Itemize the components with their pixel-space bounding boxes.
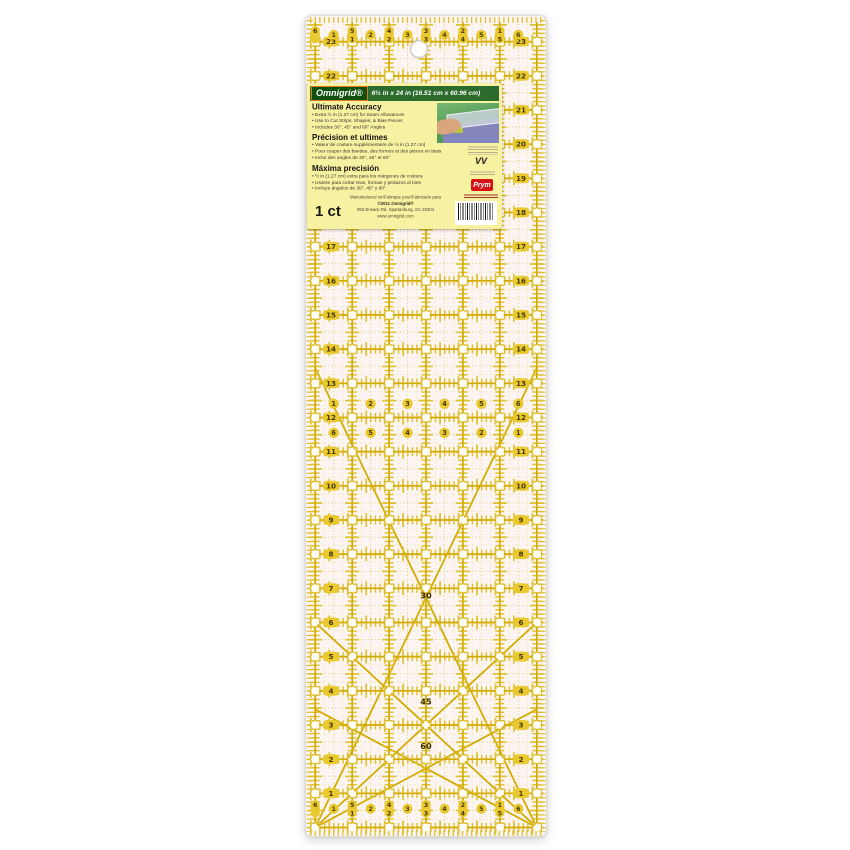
svg-text:60: 60: [420, 741, 432, 751]
svg-text:4: 4: [387, 27, 392, 35]
svg-text:1: 1: [518, 789, 523, 798]
svg-text:10: 10: [326, 481, 336, 490]
svg-text:3: 3: [442, 429, 447, 437]
svg-text:7: 7: [518, 584, 523, 593]
svg-text:1: 1: [498, 801, 502, 809]
svg-text:6: 6: [516, 400, 521, 408]
svg-text:17: 17: [326, 242, 336, 251]
svg-text:30: 30: [420, 591, 432, 601]
svg-text:4: 4: [442, 805, 447, 813]
svg-text:5: 5: [498, 35, 502, 43]
svg-text:18: 18: [516, 208, 526, 217]
svg-text:5: 5: [350, 27, 354, 35]
svg-text:3: 3: [424, 809, 428, 817]
svg-text:11: 11: [326, 447, 336, 456]
svg-text:2: 2: [328, 755, 333, 764]
manufacturer-info: Manufactured for/Fabriqué pour/Fabricado…: [343, 195, 448, 220]
svg-text:3: 3: [328, 721, 333, 730]
svg-text:6: 6: [516, 805, 521, 813]
svg-text:45: 45: [420, 697, 432, 707]
svg-text:2: 2: [461, 27, 465, 35]
svg-text:2: 2: [368, 805, 372, 813]
svg-text:15: 15: [326, 311, 336, 320]
svg-text:6: 6: [328, 618, 333, 627]
svg-text:1: 1: [350, 35, 354, 43]
svg-text:2: 2: [518, 755, 523, 764]
svg-text:3: 3: [405, 31, 409, 39]
svg-text:5: 5: [328, 652, 333, 661]
product-photo: 2323222221212020191918181717161615151414…: [0, 0, 850, 850]
brand-logo: Omnigrid®: [311, 86, 368, 101]
count-badge: 1 ct: [315, 203, 341, 220]
svg-text:15: 15: [516, 311, 526, 320]
svg-text:4: 4: [405, 429, 410, 437]
svg-text:21: 21: [516, 106, 526, 115]
bullet-text: Includes 30°, 45° and 60° Angles: [312, 125, 432, 131]
vv-mark: VV: [475, 156, 487, 166]
svg-text:20: 20: [516, 140, 526, 149]
website-line: www.omnigrid.com: [343, 214, 448, 220]
svg-text:2: 2: [387, 35, 391, 43]
svg-text:1: 1: [498, 27, 502, 35]
svg-text:3: 3: [405, 805, 409, 813]
svg-text:16: 16: [516, 276, 526, 285]
svg-text:3: 3: [424, 801, 428, 809]
svg-text:4: 4: [461, 35, 466, 43]
svg-text:8: 8: [518, 550, 523, 559]
svg-text:1: 1: [331, 400, 336, 408]
svg-text:2: 2: [368, 400, 373, 408]
svg-text:14: 14: [516, 345, 526, 354]
barcode-bars: [458, 203, 494, 220]
svg-text:11: 11: [516, 447, 526, 456]
usage-photo-thumbnail: [437, 103, 499, 143]
svg-text:9: 9: [518, 516, 523, 525]
svg-text:6: 6: [331, 429, 336, 437]
svg-text:17: 17: [516, 242, 526, 251]
svg-text:6: 6: [313, 27, 318, 35]
svg-text:13: 13: [516, 379, 526, 388]
svg-text:5: 5: [350, 801, 354, 809]
svg-text:6: 6: [518, 618, 523, 627]
svg-text:7: 7: [328, 584, 333, 593]
svg-text:4: 4: [461, 809, 466, 817]
prym-logo: Prym: [471, 179, 493, 191]
label-header: Omnigrid® 6½ in x 24 in (16.51 cm x 60.9…: [310, 86, 499, 101]
bullet-text: Incluye ángulos de 30°, 45° y 60°: [312, 187, 480, 193]
svg-text:4: 4: [328, 686, 333, 695]
svg-text:2: 2: [461, 801, 465, 809]
svg-text:19: 19: [516, 174, 526, 183]
svg-text:5: 5: [518, 652, 523, 661]
svg-text:4: 4: [442, 31, 447, 39]
svg-text:5: 5: [368, 429, 373, 437]
svg-text:2: 2: [387, 809, 391, 817]
svg-text:14: 14: [326, 345, 336, 354]
svg-text:10: 10: [516, 481, 526, 490]
svg-text:2: 2: [479, 429, 484, 437]
svg-text:1: 1: [331, 31, 335, 39]
svg-text:5: 5: [479, 31, 483, 39]
svg-text:4: 4: [442, 400, 447, 408]
bullet-text: Inclut des angles de 30°, 45° et 60°: [312, 156, 480, 162]
svg-text:3: 3: [518, 721, 523, 730]
svg-text:6: 6: [516, 31, 521, 39]
svg-text:1: 1: [331, 805, 335, 813]
size-text: 6½ in x 24 in (16.51 cm x 60.96 cm): [372, 90, 481, 97]
fine-print-block: [470, 170, 495, 176]
manufactured-for-line: Manufactured for/Fabriqué pour/Fabricado…: [343, 195, 448, 201]
svg-text:9: 9: [328, 516, 333, 525]
svg-text:1: 1: [328, 789, 333, 798]
svg-text:5: 5: [498, 809, 502, 817]
svg-text:12: 12: [516, 413, 526, 422]
svg-text:16: 16: [326, 276, 336, 285]
svg-text:12: 12: [326, 413, 336, 422]
svg-text:5: 5: [479, 400, 484, 408]
svg-text:2: 2: [368, 31, 372, 39]
barcode: [455, 201, 497, 225]
svg-text:5: 5: [479, 805, 483, 813]
svg-text:1: 1: [516, 429, 521, 437]
quilting-ruler: 2323222221212020191918181717161615151414…: [305, 15, 547, 837]
svg-text:8: 8: [328, 550, 333, 559]
svg-text:22: 22: [516, 71, 526, 80]
svg-text:6: 6: [313, 801, 318, 809]
svg-text:3: 3: [424, 27, 428, 35]
svg-text:4: 4: [518, 686, 523, 695]
svg-text:13: 13: [326, 379, 336, 388]
svg-text:22: 22: [326, 71, 336, 80]
fine-print-block: [468, 145, 498, 155]
svg-text:4: 4: [387, 801, 392, 809]
svg-text:1: 1: [350, 809, 354, 817]
svg-text:3: 3: [405, 400, 410, 408]
svg-text:3: 3: [424, 35, 428, 43]
product-label: Omnigrid® 6½ in x 24 in (16.51 cm x 60.9…: [307, 83, 502, 229]
fine-print-red: [464, 193, 498, 199]
